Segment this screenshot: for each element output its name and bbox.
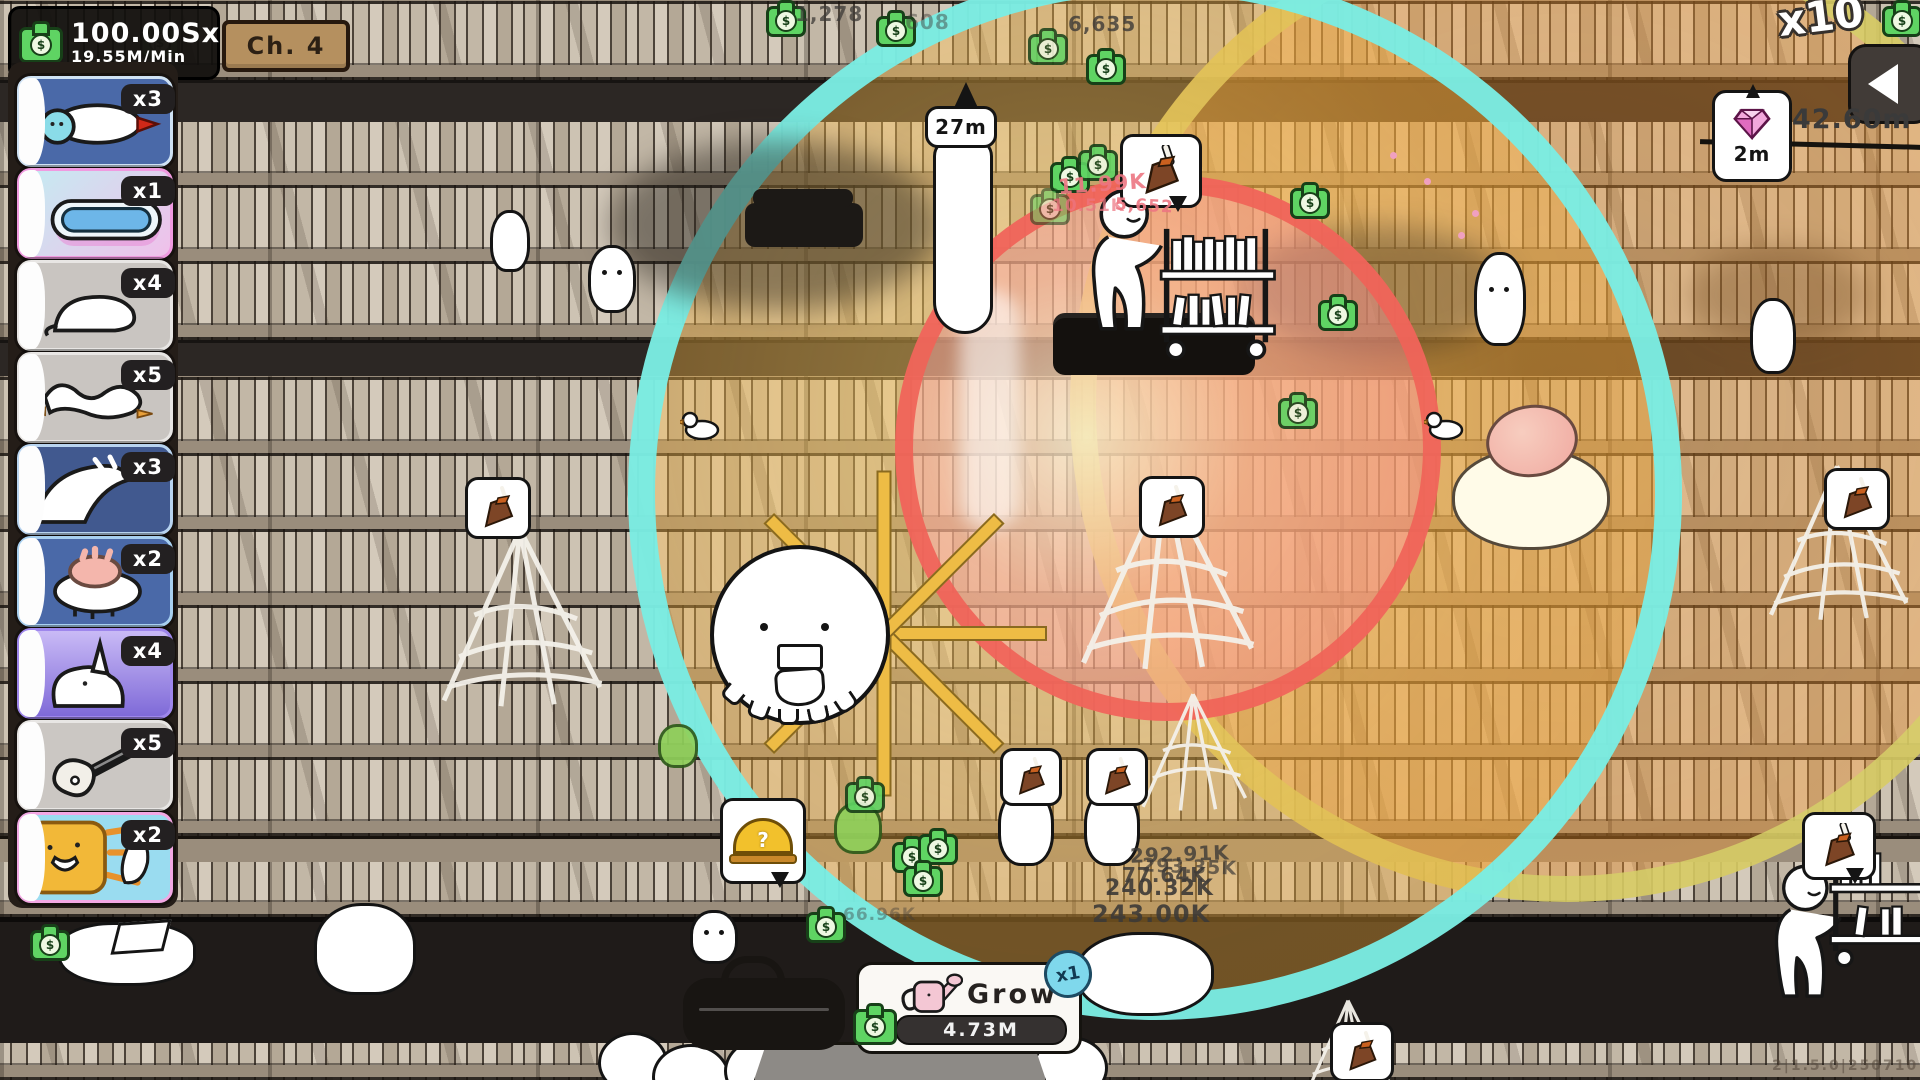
- torn-edge: [19, 446, 45, 533]
- broom-icon: [1835, 477, 1879, 521]
- broom-timer-bubble: 27m: [925, 106, 997, 148]
- floating-number: 6,635: [1068, 12, 1136, 36]
- money-bag[interactable]: $: [1882, 2, 1920, 37]
- floating-number: 240.32K: [1105, 876, 1214, 901]
- floating-number: 1,278: [795, 2, 863, 26]
- chapter-label: Ch. 4: [247, 32, 326, 60]
- dollar-icon: $: [885, 20, 907, 42]
- grow-stack-label: x1: [1054, 962, 1081, 987]
- sidebar-card-rhino[interactable]: x4: [17, 628, 173, 719]
- card-multiplier: x2: [121, 820, 175, 850]
- money-bag[interactable]: $: [806, 908, 846, 943]
- dollar-icon: $: [912, 870, 934, 892]
- cloche-icon: ?: [733, 818, 793, 854]
- broom-pickup[interactable]: [1330, 1022, 1394, 1080]
- broom-icon: [1097, 757, 1137, 797]
- heart-particle: [1458, 232, 1465, 239]
- grow-cost-value: 4.73M: [943, 1019, 1019, 1041]
- card-multiplier: x1: [121, 176, 175, 206]
- back-icon: [1868, 64, 1898, 104]
- ghost-blob: [314, 903, 416, 995]
- broom-icon: [1011, 757, 1051, 797]
- torn-edge: [19, 538, 45, 625]
- gem-timer[interactable]: 2m: [1712, 90, 1792, 182]
- ghost-blob: [690, 910, 738, 964]
- heart-particle: [1390, 152, 1397, 159]
- dollar-icon: $: [864, 1016, 886, 1038]
- sidebar-card-diving-goose[interactable]: x3: [17, 444, 173, 535]
- couch: [745, 203, 863, 247]
- money-bag-icon: $: [853, 1005, 897, 1045]
- dollar-icon: $: [1287, 402, 1309, 424]
- version-watermark: 2|1.5.0|250710: [1772, 1058, 1918, 1074]
- money-bag[interactable]: $: [845, 778, 885, 813]
- eye: [821, 623, 829, 631]
- dollar-icon: $: [854, 786, 876, 808]
- sidebar-panel: x3 x1 x4 x5: [8, 62, 178, 908]
- floating-number: 243.00K: [1092, 900, 1210, 928]
- sidebar-card-guitar[interactable]: x5: [17, 720, 173, 811]
- money-bag[interactable]: $: [1278, 394, 1318, 429]
- ghost-blob: [588, 245, 636, 313]
- money-bag[interactable]: $: [1290, 184, 1330, 219]
- green-blob: [658, 724, 698, 768]
- card-multiplier: x4: [121, 268, 175, 298]
- question-mark: ?: [757, 828, 769, 852]
- book-cart: [1152, 222, 1280, 362]
- money-bag[interactable]: $: [903, 862, 943, 897]
- card-multiplier: x4: [121, 636, 175, 666]
- sidebar-card-bowing-goose[interactable]: x4: [17, 260, 173, 351]
- mouth: [774, 666, 827, 707]
- dollar-icon: $: [30, 34, 52, 56]
- wizard-ghost: [933, 138, 993, 334]
- torn-edge: [19, 262, 45, 349]
- dollar-icon: $: [1891, 10, 1913, 32]
- dollar-icon: $: [927, 838, 949, 860]
- sidebar-card-tangled-geese[interactable]: x5: [17, 352, 173, 443]
- sidebar-card-pool[interactable]: x1: [17, 168, 173, 259]
- gem-icon: [1732, 106, 1772, 140]
- money-bag-icon: $: [19, 23, 63, 63]
- broom-icon: [1150, 485, 1194, 529]
- duffel-bag: [683, 978, 845, 1050]
- broom-timer-label: 27m: [935, 115, 987, 139]
- card-multiplier: x5: [121, 360, 175, 390]
- sidebar-card-sheep[interactable]: x2: [17, 536, 173, 627]
- chapter-sign: Ch. 4: [222, 20, 350, 72]
- dollar-icon: $: [815, 916, 837, 938]
- sidebar-card-sun[interactable]: x2: [17, 812, 173, 903]
- heart-particle: [1472, 210, 1479, 217]
- ghost-blob: [490, 210, 530, 272]
- dollar-icon: $: [1037, 38, 1059, 60]
- eye: [760, 623, 768, 631]
- card-multiplier: x3: [121, 452, 175, 482]
- broom-speech-bubble: [1802, 812, 1876, 880]
- broom-pickup[interactable]: [1824, 468, 1890, 530]
- torn-edge: [19, 78, 45, 165]
- paper-sheet: [110, 919, 171, 955]
- dollar-icon: $: [1327, 304, 1349, 326]
- floating-number: 66.96K: [843, 905, 916, 925]
- grow-label: Grow: [967, 979, 1058, 1010]
- money-bag[interactable]: $: [1086, 50, 1126, 85]
- sidebar-card-caterpillar[interactable]: x3: [17, 76, 173, 167]
- heart-particle: [1424, 178, 1431, 185]
- money-bag[interactable]: $: [1318, 296, 1358, 331]
- money-amount: 100.00Sx: [71, 20, 220, 48]
- ghost-blob: [1474, 252, 1526, 346]
- dollar-icon: $: [1299, 192, 1321, 214]
- broom-pickup[interactable]: [1000, 748, 1062, 806]
- torn-edge: [19, 814, 45, 901]
- watering-can-icon: [893, 971, 963, 1017]
- grow-cost-pill: 4.73M: [895, 1015, 1067, 1045]
- foot: [778, 709, 799, 725]
- spiderweb: [420, 520, 620, 710]
- dollar-icon: $: [1095, 58, 1117, 80]
- distance-label: 42.60m: [1792, 104, 1912, 135]
- dollar-icon: $: [775, 10, 797, 32]
- card-multiplier: x2: [121, 544, 175, 574]
- ball-face-creature: [710, 545, 890, 725]
- broom-icon: [1816, 823, 1862, 869]
- dollar-icon: $: [39, 934, 61, 956]
- duck: [1424, 408, 1468, 440]
- nose: [777, 644, 823, 670]
- cloud-creature: [1076, 932, 1214, 1016]
- card-multiplier: x3: [121, 84, 175, 114]
- money-bag[interactable]: $: [1028, 30, 1068, 65]
- card-multiplier: x5: [121, 728, 175, 758]
- torn-edge: [19, 170, 45, 257]
- cloche-base: [729, 854, 797, 864]
- game-stage: 27m: [0, 0, 1920, 1080]
- broom-icon: [476, 486, 520, 530]
- gem-timer-label: 2m: [1734, 142, 1771, 166]
- broom-pickup[interactable]: [1086, 748, 1148, 806]
- floating-number: 608: [905, 10, 950, 34]
- broom-pickup[interactable]: [1139, 476, 1205, 538]
- torn-edge: [19, 722, 45, 809]
- duck: [680, 408, 724, 440]
- torn-edge: [19, 630, 45, 717]
- floating-number: 5,652: [1115, 194, 1175, 217]
- broom-pickup[interactable]: [465, 477, 531, 539]
- torn-edge: [19, 354, 45, 441]
- broom-icon: [1341, 1031, 1383, 1073]
- money-bag[interactable]: $: [30, 926, 70, 961]
- ghost-blob: [1750, 298, 1796, 374]
- mystery-dish-bubble: ?: [720, 798, 806, 884]
